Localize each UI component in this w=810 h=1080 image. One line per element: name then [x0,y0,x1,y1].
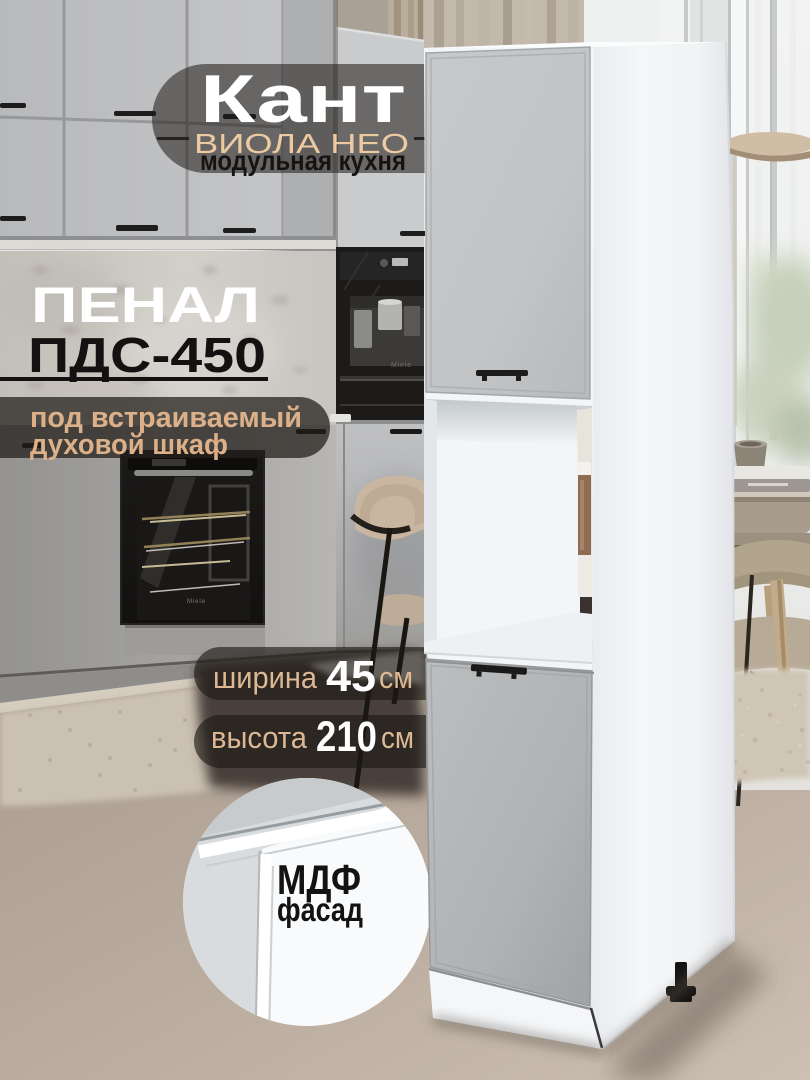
svg-text:см: см [381,720,414,755]
svg-text:Miele: Miele [391,362,411,369]
svg-text:Miele: Miele [187,599,206,605]
svg-text:см: см [379,660,413,695]
svg-text:духовой шкаф: духовой шкаф [30,429,228,461]
svg-text:фасад: фасад [277,891,363,928]
svg-text:модульная кухня: модульная кухня [200,145,406,176]
svg-text:Кант: Кант [200,61,406,137]
svg-text:высота: высота [211,720,308,755]
svg-text:210: 210 [316,713,377,761]
svg-text:ширина: ширина [213,660,318,695]
svg-text:ПЕНАЛ: ПЕНАЛ [31,277,260,333]
svg-text:ПДС-450: ПДС-450 [28,329,266,383]
svg-text:45: 45 [326,652,376,701]
